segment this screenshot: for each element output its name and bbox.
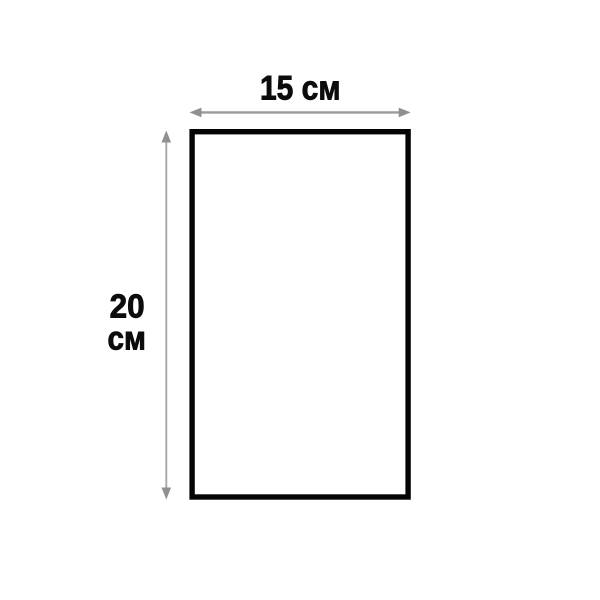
svg-text:см: см [108,319,146,356]
svg-text:15 см: 15 см [260,69,341,107]
